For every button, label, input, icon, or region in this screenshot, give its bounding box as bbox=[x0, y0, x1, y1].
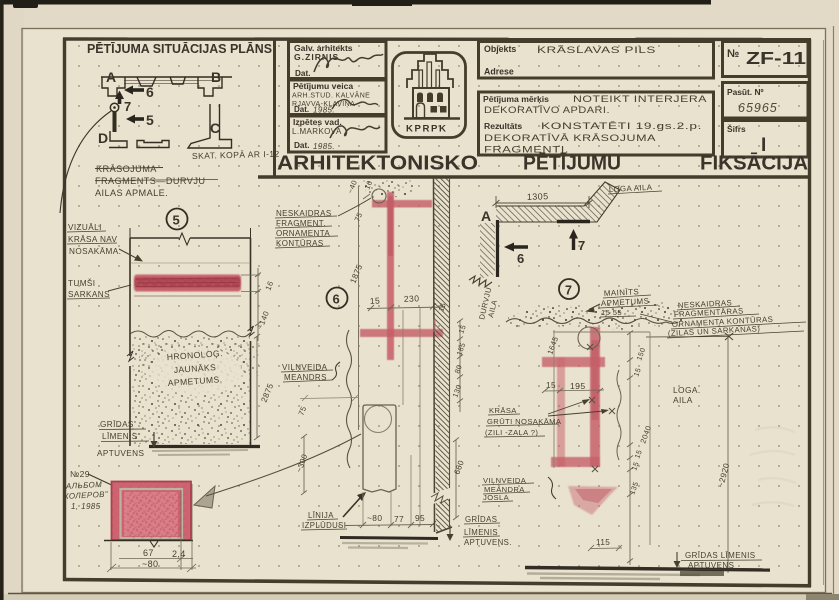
svg-text:APTUVENS.: APTUVENS. bbox=[464, 538, 512, 547]
svg-text:KRĀSLAVAS PILS: KRĀSLAVAS PILS bbox=[537, 45, 656, 56]
svg-text:Dat.: Dat. bbox=[294, 141, 309, 150]
svg-text:DEKORATĪVO APDARI.: DEKORATĪVO APDARI. bbox=[484, 105, 610, 115]
svg-text:KRĀSA: KRĀSA bbox=[489, 406, 517, 415]
svg-text:GRĪDAS LĪMENIS: GRĪDAS LĪMENIS bbox=[685, 551, 756, 560]
svg-text:B: B bbox=[211, 69, 221, 85]
svg-text:230: 230 bbox=[404, 293, 420, 304]
svg-text:LĪMENIS: LĪMENIS bbox=[102, 431, 138, 441]
svg-text:7: 7 bbox=[565, 284, 572, 298]
svg-text:Izpētes vad.: Izpētes vad. bbox=[293, 117, 342, 127]
svg-text:D: D bbox=[98, 130, 108, 146]
svg-text:1985.: 1985. bbox=[313, 142, 335, 151]
svg-text:GRĪDAS: GRĪDAS bbox=[100, 419, 134, 429]
svg-text:7: 7 bbox=[124, 99, 131, 114]
svg-text:SARKANS: SARKANS bbox=[68, 290, 110, 299]
svg-text:1305: 1305 bbox=[527, 191, 549, 202]
svg-text:DEKORATĪVĀ KRĀSOJUMA: DEKORATĪVĀ KRĀSOJUMA bbox=[484, 133, 656, 143]
svg-text:6: 6 bbox=[146, 84, 154, 100]
svg-text:7: 7 bbox=[578, 238, 585, 253]
svg-text:VIZUĀLI: VIZUĀLI bbox=[68, 222, 102, 232]
svg-text:~80: ~80 bbox=[367, 513, 382, 523]
svg-text:A: A bbox=[106, 69, 116, 85]
svg-text:APTUVENS: APTUVENS bbox=[688, 561, 734, 570]
svg-text:№29: №29 bbox=[70, 469, 90, 479]
svg-text:95: 95 bbox=[415, 513, 425, 523]
svg-text:Objekts: Objekts bbox=[484, 44, 516, 54]
svg-text:1985.: 1985. bbox=[313, 106, 335, 115]
svg-text:NOSAKĀMA.: NOSAKĀMA. bbox=[69, 246, 121, 256]
svg-text:PĒTĪJUMU: PĒTĪJUMU bbox=[523, 152, 621, 175]
svg-text:A: A bbox=[481, 208, 491, 224]
svg-text:KRĀSOJUMA: KRĀSOJUMA bbox=[96, 164, 157, 174]
svg-text:KONSTATĒTI 19.gs.2.p.: KONSTATĒTI 19.gs.2.p. bbox=[541, 121, 702, 131]
svg-text:TUMŠI: TUMŠI bbox=[68, 278, 95, 288]
svg-text:PĒTĪJUMA SITUĀCIJAS PLĀNS: PĒTĪJUMA SITUĀCIJAS PLĀNS bbox=[87, 42, 272, 56]
svg-text:AILA: AILA bbox=[673, 395, 693, 405]
svg-text:(ZILI -ZAĻA ?): (ZILI -ZAĻA ?) bbox=[485, 428, 538, 437]
svg-text:GRĪDAS: GRĪDAS bbox=[465, 515, 497, 524]
svg-text:Adrese: Adrese bbox=[484, 67, 514, 77]
svg-text:Pētījuma mērķis: Pētījuma mērķis bbox=[483, 94, 549, 104]
svg-text:AILAS APMALE.: AILAS APMALE. bbox=[95, 188, 168, 198]
svg-text:77: 77 bbox=[394, 514, 404, 524]
svg-text:FRAGMENTS—DURVJU: FRAGMENTS—DURVJU bbox=[95, 176, 205, 186]
svg-text:115: 115 bbox=[596, 538, 610, 547]
svg-text:ARHITEKTONISKO: ARHITEKTONISKO bbox=[277, 152, 478, 175]
svg-text:1, 1985: 1, 1985 bbox=[71, 502, 101, 511]
svg-text:5: 5 bbox=[173, 213, 180, 228]
svg-text:67: 67 bbox=[143, 548, 154, 558]
svg-text:LOGA.: LOGA. bbox=[673, 385, 701, 395]
svg-text:FIKSĀCIJA: FIKSĀCIJA bbox=[700, 152, 808, 175]
svg-text:~80: ~80 bbox=[142, 559, 158, 569]
svg-text:JOSLA: JOSLA bbox=[483, 493, 510, 502]
svg-text:Pētījumu veica: Pētījumu veica bbox=[293, 81, 353, 91]
svg-text:C: C bbox=[210, 120, 220, 136]
svg-text:195: 195 bbox=[570, 381, 586, 391]
svg-text:2,4: 2,4 bbox=[172, 549, 186, 559]
svg-text:KPRPK: KPRPK bbox=[406, 124, 448, 135]
svg-text:Dat.: Dat. bbox=[294, 105, 309, 114]
svg-text:15: 15 bbox=[370, 295, 381, 306]
svg-text:Pasūt. Nº: Pasūt. Nº bbox=[727, 87, 764, 97]
svg-text:Rezultāts: Rezultāts bbox=[484, 121, 522, 131]
svg-text:6: 6 bbox=[517, 251, 524, 266]
svg-text:5: 5 bbox=[146, 112, 154, 128]
svg-text:G.ZIRNIS: G.ZIRNIS bbox=[294, 52, 339, 62]
svg-text:APTUVENS: APTUVENS bbox=[97, 449, 144, 458]
svg-text:65965: 65965 bbox=[738, 101, 778, 115]
svg-text:ZF-11: ZF-11 bbox=[746, 48, 806, 68]
svg-text:IZPLŪDUSI: IZPLŪDUSI bbox=[302, 521, 346, 530]
svg-text:NOTEIKT INTERJERA: NOTEIKT INTERJERA bbox=[573, 94, 707, 104]
svg-text:ARH.STUD. KALVĀNE: ARH.STUD. KALVĀNE bbox=[292, 92, 370, 100]
svg-text:15: 15 bbox=[546, 381, 556, 390]
svg-text:KRĀSA NAV: KRĀSA NAV bbox=[68, 234, 118, 244]
svg-text:Šifrs: Šifrs bbox=[727, 123, 746, 134]
svg-text:№: № bbox=[727, 48, 739, 60]
svg-text:LĪMENIS: LĪMENIS bbox=[464, 528, 498, 537]
svg-text:6: 6 bbox=[333, 292, 340, 307]
svg-text:LĪNIJA: LĪNIJA bbox=[308, 511, 334, 520]
svg-text:Dat.: Dat. bbox=[295, 69, 310, 78]
